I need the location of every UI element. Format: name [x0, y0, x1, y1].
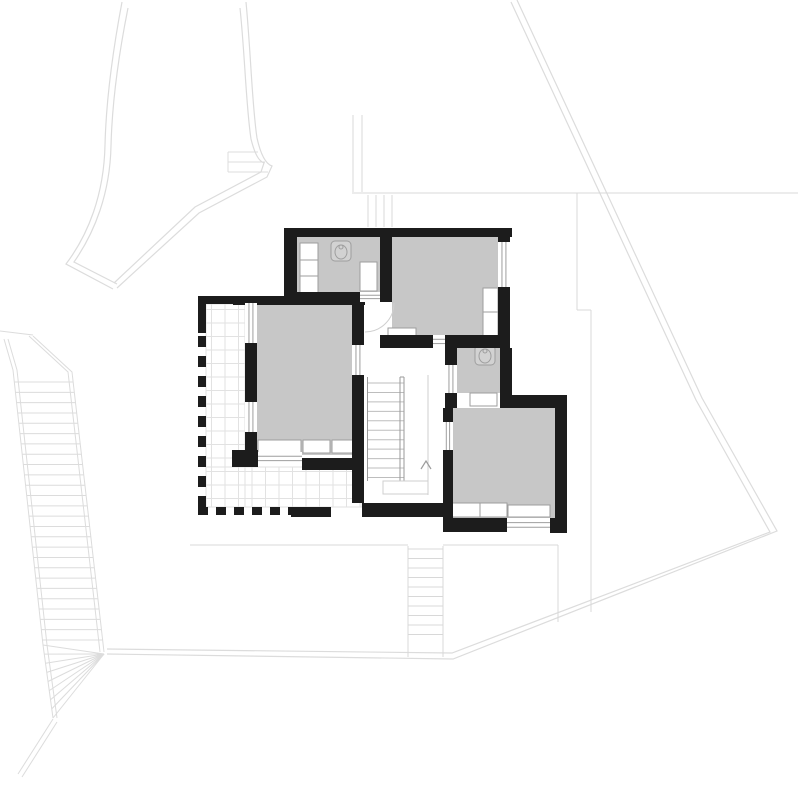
railing-dash	[198, 436, 206, 447]
door-ne-bedroom	[433, 335, 445, 348]
door-ne-bedroom-gap	[433, 335, 445, 348]
railing-dash	[198, 496, 206, 507]
railing-dash	[198, 456, 206, 467]
railing-dash	[252, 507, 262, 515]
furniture-box	[483, 312, 498, 336]
wall-segment	[498, 287, 510, 348]
wall-segment	[284, 228, 297, 303]
left-stair-fan-tread	[49, 654, 104, 691]
furniture-box	[470, 393, 497, 406]
railing-dash	[270, 507, 280, 515]
railing-dash	[234, 507, 244, 515]
funnel-left-inner	[74, 8, 128, 284]
wall-segment	[445, 393, 457, 408]
left-stair-fan-tread	[43, 645, 104, 654]
door-bathroom-small	[445, 365, 457, 393]
wall-segment	[198, 296, 206, 333]
railing-dash	[198, 376, 206, 387]
wall-segment	[352, 305, 364, 345]
interior-staircase	[368, 375, 432, 495]
wall-segment	[291, 507, 331, 517]
wall-segment	[380, 236, 392, 302]
furniture-box	[300, 276, 318, 293]
left-stair-left-rail	[4, 339, 53, 718]
left-stair-fan-tread	[53, 654, 104, 718]
window-ne-bedroom-east	[498, 242, 510, 287]
wall-segment	[443, 450, 453, 518]
stair-landing	[383, 481, 428, 494]
railing-dash	[198, 507, 208, 515]
door-se-bedroom-gap	[443, 422, 453, 450]
toilet-bathroom-top	[331, 241, 351, 261]
left-stair-entry	[0, 331, 33, 335]
wall-segment	[352, 375, 364, 503]
left-stair-exit	[22, 722, 57, 777]
room-bedroom-northeast	[392, 236, 498, 336]
furniture-box	[303, 440, 330, 453]
railing-dash	[198, 336, 206, 347]
window-ne-bedroom-east-gap	[498, 242, 510, 287]
wall-segment	[500, 348, 512, 395]
furniture-box	[300, 260, 318, 276]
door-master	[352, 345, 364, 375]
furniture-box	[508, 505, 550, 517]
tile-area-border	[206, 467, 362, 507]
toilet-body	[331, 241, 351, 261]
wall-segment	[232, 450, 258, 467]
floor-plan-drawing	[0, 0, 800, 800]
door-bathroom-small-gap	[445, 365, 457, 393]
door-master-gap	[352, 345, 364, 375]
railing-dash	[216, 507, 226, 515]
window-master-mid	[245, 402, 257, 432]
wall-segment	[550, 518, 567, 533]
funnel-left-outer	[66, 2, 122, 289]
window-se-bedroom-south-gap	[507, 518, 550, 532]
wall-segment	[245, 343, 257, 402]
window-master-north-gap	[245, 303, 257, 343]
door-terrace	[258, 452, 302, 465]
wall-segment	[443, 408, 453, 422]
window-master-mid-gap	[245, 402, 257, 432]
furniture-box	[480, 503, 507, 517]
room-bedroom-southeast	[453, 408, 555, 518]
wall-segment	[445, 348, 457, 365]
railing-dash	[198, 356, 206, 367]
furniture-box	[360, 262, 377, 291]
room-bedroom-master	[257, 305, 352, 455]
wall-segment	[362, 503, 443, 517]
wall-segment	[302, 458, 362, 470]
railing-dash	[198, 416, 206, 427]
wall-segment	[555, 395, 567, 533]
wall-segment	[287, 228, 512, 237]
funnel-right-outer	[117, 2, 272, 288]
left-stair-right-rail	[33, 336, 104, 652]
floor-plan-canvas	[0, 0, 800, 800]
door-terrace-gap	[258, 452, 302, 465]
window-master-north	[245, 303, 257, 343]
left-stair-right-rail-inner	[29, 336, 100, 652]
railing-dash	[198, 396, 206, 407]
stair-direction-arrow	[421, 461, 431, 469]
door-bathroom-top-gap	[360, 292, 380, 302]
door-bathroom-top	[360, 292, 380, 302]
railing-dash	[288, 507, 291, 515]
furniture-box	[300, 243, 318, 260]
door-se-bedroom	[443, 422, 453, 450]
furniture-box	[483, 288, 498, 312]
furniture-box	[452, 503, 480, 517]
railing-dash	[198, 476, 206, 487]
wall-segment	[380, 335, 433, 348]
wall-segment	[443, 518, 507, 532]
funnel-right-inner	[114, 8, 264, 283]
left-stair-exit	[18, 719, 53, 774]
window-se-bedroom-south	[507, 518, 550, 532]
